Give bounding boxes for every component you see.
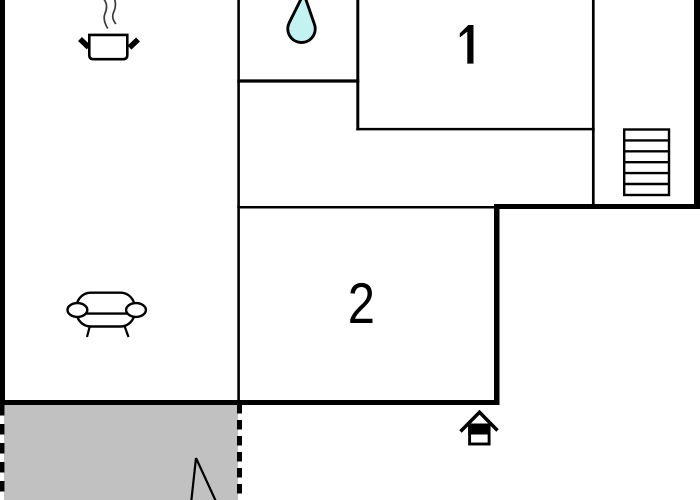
svg-text:2: 2 — [348, 273, 375, 337]
